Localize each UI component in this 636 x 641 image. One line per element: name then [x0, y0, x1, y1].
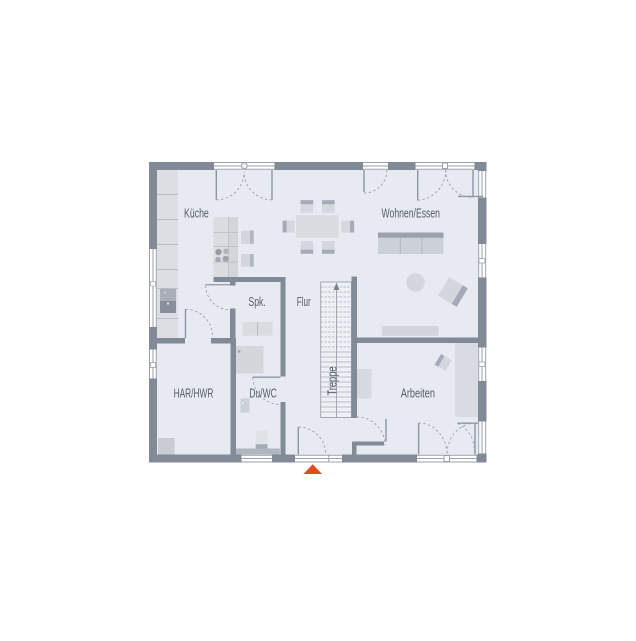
svg-text:Treppe: Treppe	[325, 367, 340, 396]
svg-text:Küche: Küche	[184, 205, 209, 220]
svg-text:Wohnen/Essen: Wohnen/Essen	[382, 205, 441, 220]
svg-text:Arbeiten: Arbeiten	[401, 385, 435, 400]
svg-text:Du/WC: Du/WC	[249, 385, 277, 400]
svg-text:Spk.: Spk.	[248, 294, 265, 309]
svg-text:Flur: Flur	[297, 294, 311, 309]
svg-text:HAR/HWR: HAR/HWR	[174, 385, 214, 400]
